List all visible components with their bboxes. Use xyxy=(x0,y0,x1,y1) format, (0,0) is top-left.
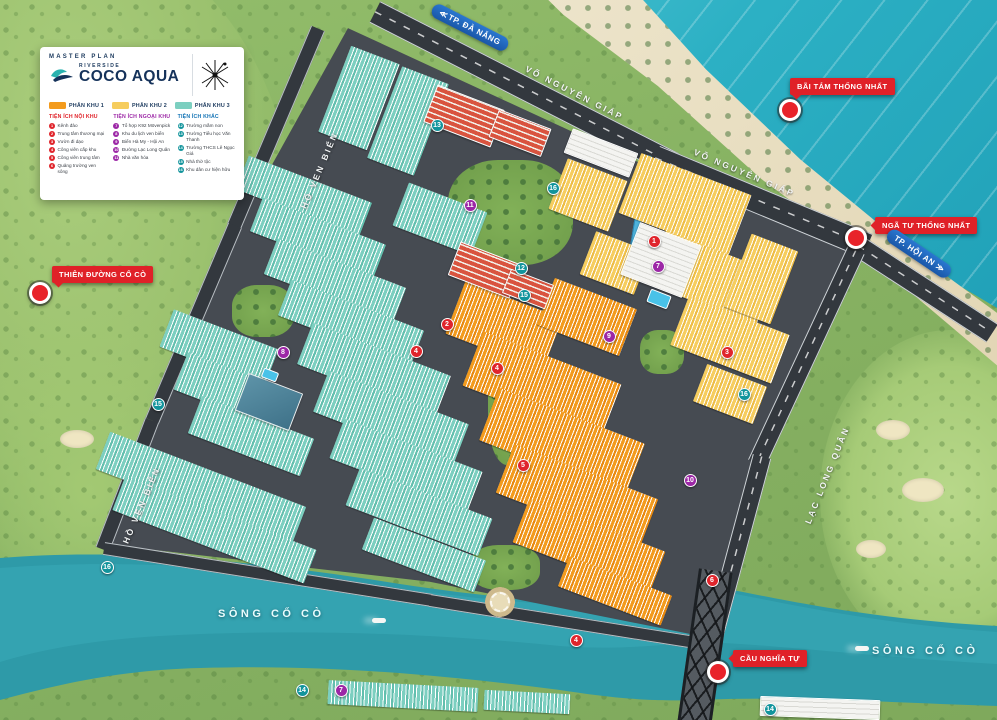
road-name-label: LẠC LONG QUÂN xyxy=(803,425,851,525)
phase-label: PHÂN KHU 2 xyxy=(132,103,167,109)
amenity-item: 7Tổ hợp K92 Mövenpick xyxy=(113,123,171,129)
direction-label: TP. HỘI AN xyxy=(892,234,939,270)
phase-legend: PHÂN KHU 1PHÂN KHU 2PHÂN KHU 3 xyxy=(49,102,236,109)
road-name-label: VÕ NGUYÊN GIÁP xyxy=(692,147,796,199)
amenity-column: TIỆN ÍCH NGOẠI KHU7Tổ hợp K92 Mövenpick8… xyxy=(113,114,171,177)
amenity-item: 8Khu du lịch ven biển xyxy=(113,131,171,137)
amenity-number-dot: 2 xyxy=(49,131,55,137)
amenity-label: Biển Hà My - Hội An xyxy=(122,139,164,145)
brand-wave-icon xyxy=(49,64,75,84)
brand-name: COCO AQUA xyxy=(79,69,179,85)
amenity-item: 13Trường Tiểu học Văn Thanh xyxy=(178,131,236,143)
amenity-column: TIỆN ÍCH NỘI KHU1Kênh đào2Trung tâm thươ… xyxy=(49,114,107,177)
legend-phase: PHÂN KHU 2 xyxy=(112,102,167,109)
amenity-number-dot: 12 xyxy=(178,123,184,129)
amenity-item: 5Công viên trung tâm xyxy=(49,155,107,161)
amenity-columns: TIỆN ÍCH NỘI KHU1Kênh đào2Trung tâm thươ… xyxy=(49,114,236,177)
phase-swatch xyxy=(112,102,129,109)
badge-bai-tam-thong-nhat[interactable]: BÃI TẮM THỐNG NHẤT xyxy=(790,78,895,95)
amenity-number-dot: 16 xyxy=(178,167,184,173)
amenity-label: Công viên trung tâm xyxy=(58,155,100,161)
amenity-item: 9Biển Hà My - Hội An xyxy=(113,139,171,145)
phase-label: PHÂN KHU 3 xyxy=(195,103,230,109)
amenity-label: Khu du lịch ven biển xyxy=(122,131,164,137)
amenity-number-dot: 4 xyxy=(49,147,55,153)
phase-label: PHÂN KHU 1 xyxy=(69,103,104,109)
amenity-label: Trường THCS Lê Ngọc Giá xyxy=(186,145,236,157)
road-name-label: HỒ VEN BIỂN xyxy=(299,130,341,210)
road-name-label: VÕ NGUYÊN GIÁP xyxy=(524,64,626,122)
amenity-number-dot: 6 xyxy=(49,163,55,169)
amenity-label: Trường Tiểu học Văn Thanh xyxy=(186,131,236,143)
amenity-label: Quảng trường ven sông xyxy=(58,163,108,175)
legend-phase: PHÂN KHU 1 xyxy=(49,102,104,109)
amenity-column-title: TIỆN ÍCH NỘI KHU xyxy=(49,114,107,120)
amenity-item: 2Trung tâm thương mại xyxy=(49,131,107,137)
amenity-number-dot: 11 xyxy=(113,155,119,161)
amenity-label: Trung tâm thương mại xyxy=(58,131,105,137)
direction-tp-hoi-an[interactable]: TP. HỘI AN ≫ xyxy=(884,227,953,281)
river-name-label: SÔNG CỔ CÒ xyxy=(872,645,979,657)
direction-tp-da-nang[interactable]: ≪ TP. ĐÀ NẴNG xyxy=(429,2,510,53)
amenity-item: 1Kênh đào xyxy=(49,123,107,129)
amenity-item: 16Khu dân cư hiện hữu xyxy=(178,167,236,173)
amenity-column: TIỆN ÍCH KHÁC12Trường mầm non13Trường Ti… xyxy=(178,114,236,177)
amenity-item: 3Vườn đi dạo xyxy=(49,139,107,145)
amenity-label: Khu dân cư hiện hữu xyxy=(186,167,230,173)
legend-phase: PHÂN KHU 3 xyxy=(175,102,230,109)
amenity-item: 4Công viên cấp khu xyxy=(49,147,107,153)
compass-star-icon xyxy=(192,54,236,96)
amenity-label: Kênh đào xyxy=(58,123,78,129)
phase-swatch xyxy=(49,102,66,109)
amenity-label: Trường mầm non xyxy=(186,123,223,129)
amenity-number-dot: 10 xyxy=(113,147,119,153)
amenity-item: 15Nhà thờ tộc xyxy=(178,159,236,165)
amenity-number-dot: 15 xyxy=(178,159,184,165)
amenity-item: 14Trường THCS Lê Ngọc Giá xyxy=(178,145,236,157)
amenity-label: Nhà văn hóa xyxy=(122,155,149,161)
amenity-label: Vườn đi dạo xyxy=(58,139,84,145)
amenity-label: Đường Lạc Long Quân xyxy=(122,147,170,153)
amenity-label: Công viên cấp khu xyxy=(58,147,97,153)
amenity-number-dot: 5 xyxy=(49,155,55,161)
amenity-number-dot: 1 xyxy=(49,123,55,129)
direction-label: TP. ĐÀ NẴNG xyxy=(444,11,502,46)
master-plan-map: 1234454677981011131215161414151616 BÃI T… xyxy=(0,0,997,720)
river-name-label: SÔNG CỔ CÒ xyxy=(218,608,325,620)
amenity-item: 11Nhà văn hóa xyxy=(113,155,171,161)
amenity-number-dot: 7 xyxy=(113,123,119,129)
badge-thien-duong-co-co[interactable]: THIÊN ĐƯỜNG CỔ CÒ xyxy=(52,266,153,283)
amenity-number-dot: 13 xyxy=(178,131,184,137)
amenity-column-title: TIỆN ÍCH NGOẠI KHU xyxy=(113,114,171,120)
master-plan-title: MASTER PLAN xyxy=(49,54,188,60)
amenity-column-title: TIỆN ÍCH KHÁC xyxy=(178,114,236,120)
amenity-number-dot: 8 xyxy=(113,131,119,137)
road-name-label: HỒ VEN BIỂN xyxy=(121,465,163,545)
amenity-item: 12Trường mầm non xyxy=(178,123,236,129)
amenity-number-dot: 3 xyxy=(49,139,55,145)
phase-swatch xyxy=(175,102,192,109)
amenity-number-dot: 9 xyxy=(113,139,119,145)
amenity-item: 10Đường Lạc Long Quân xyxy=(113,147,171,153)
amenity-item: 6Quảng trường ven sông xyxy=(49,163,107,175)
legend-card: MASTER PLAN RIVERSIDE COCO AQUA xyxy=(40,47,244,200)
badge-cau-nghia-tu[interactable]: CẦU NGHĨA TỰ xyxy=(733,650,807,667)
amenity-number-dot: 14 xyxy=(178,145,184,151)
amenity-label: Tổ hợp K92 Mövenpick xyxy=(122,123,170,129)
amenity-label: Nhà thờ tộc xyxy=(186,159,210,165)
